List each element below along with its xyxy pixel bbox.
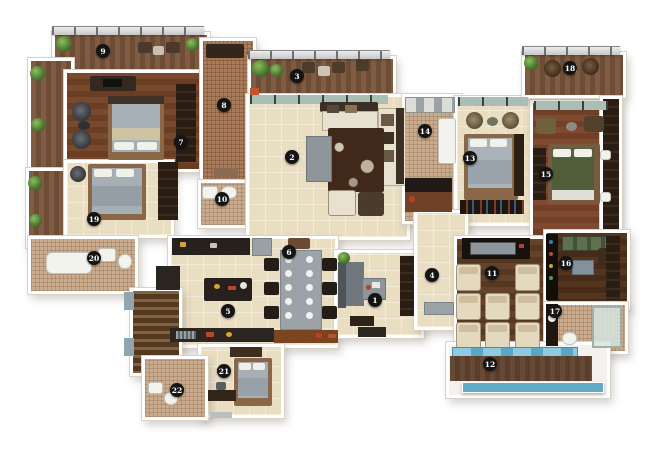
pillow: [470, 139, 487, 147]
nightstand: [600, 150, 611, 160]
stair-landing: [124, 338, 134, 356]
plate: [285, 312, 292, 319]
bottle: [549, 240, 553, 244]
planter-orange: [250, 88, 259, 95]
counter-item: [206, 332, 214, 337]
bed-sheet: [552, 190, 594, 200]
rug: [328, 128, 384, 192]
room-marker-foyer: 4: [425, 268, 439, 282]
counter-item: [180, 242, 186, 247]
recliner-seat: [515, 322, 540, 349]
shower-enclosure: [592, 306, 622, 348]
desk: [208, 390, 236, 401]
island-food: [228, 286, 236, 290]
balcony-chair: [544, 60, 561, 77]
sofa-back: [338, 262, 346, 308]
plate: [306, 298, 313, 305]
pillow: [253, 363, 265, 370]
bed-blanket: [92, 186, 142, 206]
recliner-seat: [456, 264, 481, 291]
plant: [252, 60, 269, 77]
bar-item: [316, 333, 322, 338]
side-table: [487, 117, 498, 126]
pillow: [116, 169, 134, 177]
wardrobe-low: [230, 347, 262, 357]
bathtub: [46, 252, 92, 274]
room-marker-living-room: 2: [285, 150, 299, 164]
armchair: [72, 102, 91, 121]
door-mat: [210, 412, 232, 418]
bed-blanket: [238, 378, 268, 396]
sofa-cushion: [345, 105, 357, 113]
pool-water: [462, 382, 604, 393]
plant: [29, 214, 42, 227]
dining-chair: [322, 258, 337, 271]
door-mat: [214, 168, 238, 178]
floorplan-image: 12345678910111213141516171819202122: [0, 0, 645, 450]
toilet: [118, 254, 132, 269]
armchair: [328, 190, 356, 216]
tv: [103, 79, 122, 87]
pillow: [137, 142, 157, 150]
bed-blanket: [468, 160, 512, 184]
toilet: [562, 332, 577, 345]
table-item-red: [366, 285, 371, 290]
console-table: [424, 302, 454, 315]
coffee-table: [306, 136, 332, 182]
nightstand: [600, 192, 611, 202]
window-wall: [534, 101, 608, 110]
tall-cabinet: [156, 266, 180, 290]
plate: [306, 284, 313, 291]
room-marker-entrance-lobby: 8: [217, 98, 231, 112]
plant: [524, 56, 538, 70]
sofa-cushion: [327, 105, 339, 113]
room-marker-kitchen: 5: [221, 304, 235, 318]
pillow: [239, 363, 251, 370]
sink-grid: [176, 331, 196, 339]
room-marker-lounge-bar: 16: [559, 256, 573, 270]
pillow: [490, 139, 507, 147]
plate: [306, 270, 313, 277]
recliner-seat: [456, 293, 481, 320]
island-plate: [240, 282, 247, 289]
dining-chair: [264, 258, 279, 271]
plant: [28, 176, 42, 190]
plant: [31, 118, 45, 132]
bench: [206, 44, 244, 58]
appliance-row: [405, 97, 455, 113]
tv-unit: [400, 256, 414, 316]
armchair: [358, 192, 384, 216]
pillow: [94, 169, 112, 177]
room-marker-bedroom-3: 15: [539, 167, 553, 181]
laptop: [372, 282, 380, 288]
armchair: [466, 112, 483, 129]
bottle: [549, 252, 553, 256]
washer: [438, 118, 456, 164]
room-marker-bathroom-3: 17: [548, 304, 562, 318]
balcony-chair: [356, 60, 369, 71]
room-marker-bathroom-5: 22: [170, 383, 184, 397]
tv-screen: [470, 242, 516, 255]
room-marker-master-bathroom: 10: [215, 192, 229, 206]
stove: [252, 238, 272, 256]
counter-dark: [405, 178, 452, 192]
armchair: [536, 118, 556, 134]
recliner-seat: [515, 293, 540, 320]
plant: [270, 64, 283, 77]
desk-chair: [216, 382, 226, 390]
room-marker-master-balcony: 9: [96, 44, 110, 58]
armchair: [72, 130, 91, 149]
room-marker-dining: 6: [282, 245, 296, 259]
room-marker-home-theater: 11: [485, 266, 499, 280]
pillow: [553, 149, 571, 157]
balcony-railing: [52, 26, 204, 35]
balcony-chair: [138, 42, 152, 53]
armchair: [502, 112, 519, 129]
room-balcony-3: [522, 52, 626, 98]
pillow: [574, 149, 592, 157]
pool-deck-wood: [450, 356, 592, 381]
room-marker-bathroom-4: 20: [87, 251, 101, 265]
plate: [285, 298, 292, 305]
low-cabinet: [350, 316, 374, 326]
closet: [158, 162, 178, 220]
room-marker-study: 1: [368, 293, 382, 307]
cabinet-wood: [405, 192, 452, 212]
plate: [306, 256, 313, 263]
side-table: [78, 121, 90, 130]
entrance-mat: [358, 327, 386, 337]
plate: [285, 270, 292, 277]
balcony-table: [318, 66, 330, 76]
plant: [56, 36, 72, 52]
window-wall: [458, 97, 528, 106]
room-marker-pool-deck: 12: [483, 357, 497, 371]
dining-chair: [322, 282, 337, 295]
sink: [148, 382, 163, 394]
room-marker-master-bedroom: 7: [174, 135, 188, 149]
counter-item: [210, 243, 217, 248]
room-marker-bedroom-2: 13: [463, 151, 477, 165]
plant: [186, 38, 199, 51]
sofa-cushion: [381, 114, 394, 126]
balcony-chair: [302, 62, 315, 73]
recliner-seat: [485, 322, 510, 349]
recliner-seat: [456, 322, 481, 349]
wardrobe-low: [460, 200, 524, 214]
wardrobe: [176, 84, 196, 162]
plate: [285, 284, 292, 291]
balcony-chair: [332, 62, 345, 73]
balcony-table: [153, 46, 164, 55]
dining-chair: [322, 306, 337, 319]
room-marker-balcony-3: 18: [563, 61, 577, 75]
headboard: [108, 96, 164, 104]
lounge-table: [572, 260, 594, 275]
balcony-railing: [248, 50, 390, 59]
closet: [606, 236, 620, 300]
plant: [338, 252, 350, 264]
stair-landing: [124, 292, 134, 310]
room-marker-bedroom-5: 21: [217, 364, 231, 378]
bottle: [549, 276, 553, 280]
bed-bench: [514, 134, 524, 196]
pillow: [114, 142, 134, 150]
dining-chair: [264, 282, 279, 295]
island-food: [214, 284, 220, 289]
sofa-l-back: [396, 108, 404, 184]
console-item-red: [519, 244, 524, 248]
room-marker-utility-kitchen: 14: [418, 124, 432, 138]
armchair: [70, 166, 86, 182]
balcony-chair: [166, 42, 180, 53]
dining-chair: [264, 306, 279, 319]
room-marker-living-balcony: 3: [290, 69, 304, 83]
side-table: [566, 122, 577, 131]
counter-item: [226, 332, 232, 337]
room-marker-bedroom-4: 19: [87, 212, 101, 226]
plate: [306, 312, 313, 319]
recliner-seat: [485, 293, 510, 320]
armchair: [584, 116, 604, 132]
plant: [30, 66, 45, 81]
bar-item: [328, 334, 336, 338]
kettle-red: [409, 196, 415, 202]
balcony-chair: [582, 58, 599, 75]
balcony-railing: [522, 46, 620, 55]
recliner-seat: [515, 264, 540, 291]
bottle: [549, 264, 553, 268]
bed-blanket: [112, 128, 160, 140]
